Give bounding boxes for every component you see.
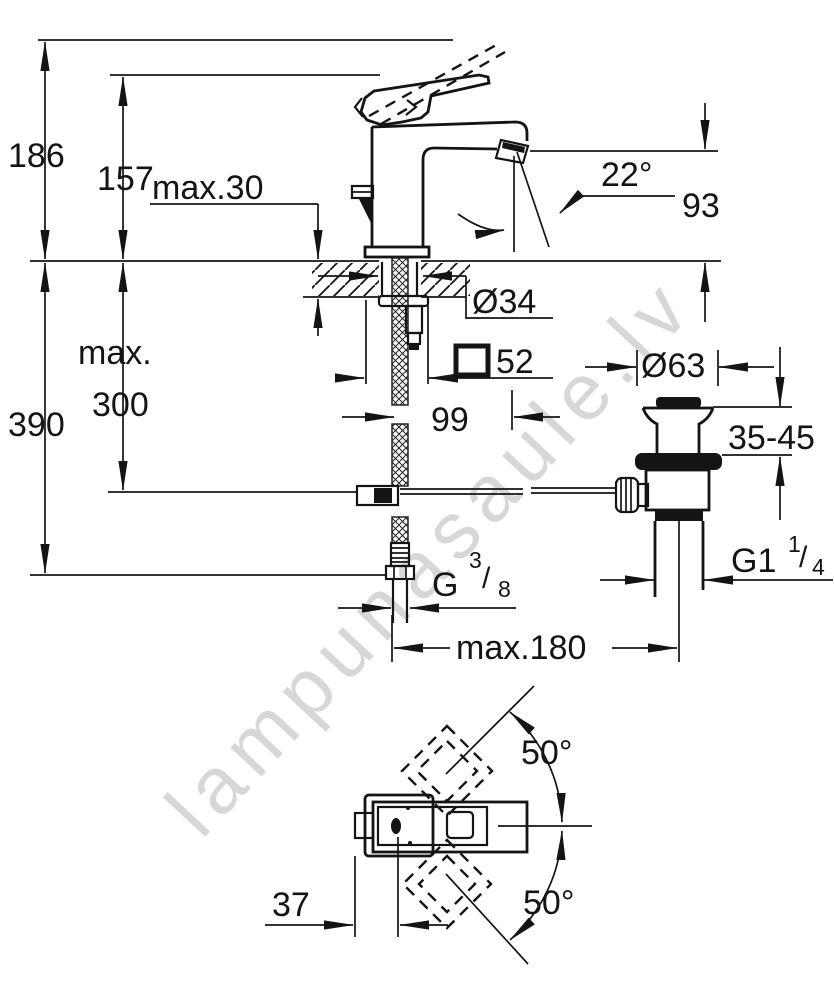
handle-raised-dashed-top — [369, 44, 498, 116]
fitting-stripes — [391, 548, 409, 562]
svg-text:/: / — [799, 541, 808, 574]
waste-knob — [616, 478, 638, 512]
dim-supply-max-prefix: max. — [78, 334, 152, 372]
stream-angle-line — [517, 152, 549, 247]
mounting-stud-end — [409, 344, 419, 350]
waste-knob-knurl — [621, 478, 631, 512]
pivot-mark — [391, 818, 401, 834]
waste-flange — [643, 408, 713, 453]
top-down-view: 50° 50° 37 — [265, 686, 592, 964]
dim-waste-diameter-label: Ø63 — [641, 347, 705, 385]
hose-nut-facets — [394, 566, 406, 579]
supply-hose-mid — [392, 424, 408, 486]
dim-spout-projection-label: 99 — [431, 401, 469, 439]
svg-text:G: G — [432, 566, 458, 604]
popup-rod — [108, 488, 617, 494]
deck-hatch-left — [312, 263, 379, 296]
swing-down-inner-dashed — [419, 856, 475, 912]
dim-body-width-label: 52 — [496, 343, 534, 381]
dim-handle-offset-label: 37 — [272, 886, 310, 924]
dim-waste-deck-range-label: 35-45 — [728, 419, 815, 457]
supply-hose-lower — [392, 517, 408, 543]
waste-body-ring — [655, 510, 703, 521]
faucet-body — [352, 44, 528, 257]
square-symbol — [456, 346, 488, 375]
side-view: 186 157 max.30 22° 93 max. 300 390 Ø34 5… — [8, 40, 833, 667]
hose-nut — [386, 566, 414, 579]
waste-gasket — [635, 453, 722, 470]
dim-rod-reach-label: max.180 — [456, 629, 586, 667]
faucet-dimension-drawing: 186 157 max.30 22° 93 max. 300 390 Ø34 5… — [0, 0, 834, 1000]
handle-lever-inner-edge — [428, 96, 431, 112]
svg-text:3: 3 — [469, 547, 482, 573]
detail-dot-1 — [406, 806, 410, 810]
dim-hole-diameter-label: Ø34 — [472, 283, 536, 321]
rod-lines — [400, 488, 617, 494]
handle-lever — [361, 75, 489, 125]
detail-dot-2 — [408, 841, 412, 845]
technical-drawing-page: lampunasaule.lv — [0, 0, 834, 1000]
waste-body — [646, 470, 709, 510]
dim-total-height-label: 186 — [8, 137, 65, 175]
stream-arc-arrow — [458, 214, 504, 230]
dim-supply-max-value: 300 — [92, 386, 149, 424]
svg-text:/: / — [482, 562, 491, 595]
dim-stream-angle-label: 22° — [601, 156, 652, 194]
hose-end-tube — [393, 579, 407, 623]
waste-thread-label: G1 1 / 4 — [731, 531, 825, 580]
svg-text:8: 8 — [498, 576, 511, 602]
svg-text:G1: G1 — [731, 542, 776, 580]
waste-plug-cap — [656, 397, 701, 408]
dim-spout-tip-height-label: 157 — [97, 160, 154, 198]
dim-swing-up-label: 50° — [521, 734, 572, 772]
handle-motion-mark-right — [406, 100, 416, 115]
popup-rod-shade — [359, 199, 371, 223]
deck-hatch-right — [421, 263, 470, 296]
underdeck-assembly — [357, 258, 428, 623]
rod-tee-core — [374, 488, 392, 503]
mounting-stud-nut — [408, 333, 420, 344]
dim-spout-height-label: 93 — [682, 187, 720, 225]
dim-install-depth-label: 390 — [8, 406, 65, 444]
dim-swing-down-label: 50° — [523, 884, 574, 922]
supply-thread-label: G 3 / 8 — [432, 547, 511, 604]
spout-opening-top-view — [447, 812, 473, 838]
faucet-base-plate — [365, 247, 429, 257]
waste-assembly — [616, 397, 722, 662]
swing-up-inner-dashed — [417, 741, 477, 801]
dim-deck-thickness-label: max.30 — [152, 169, 264, 207]
angle-leader — [560, 196, 675, 213]
svg-text:4: 4 — [812, 554, 825, 580]
